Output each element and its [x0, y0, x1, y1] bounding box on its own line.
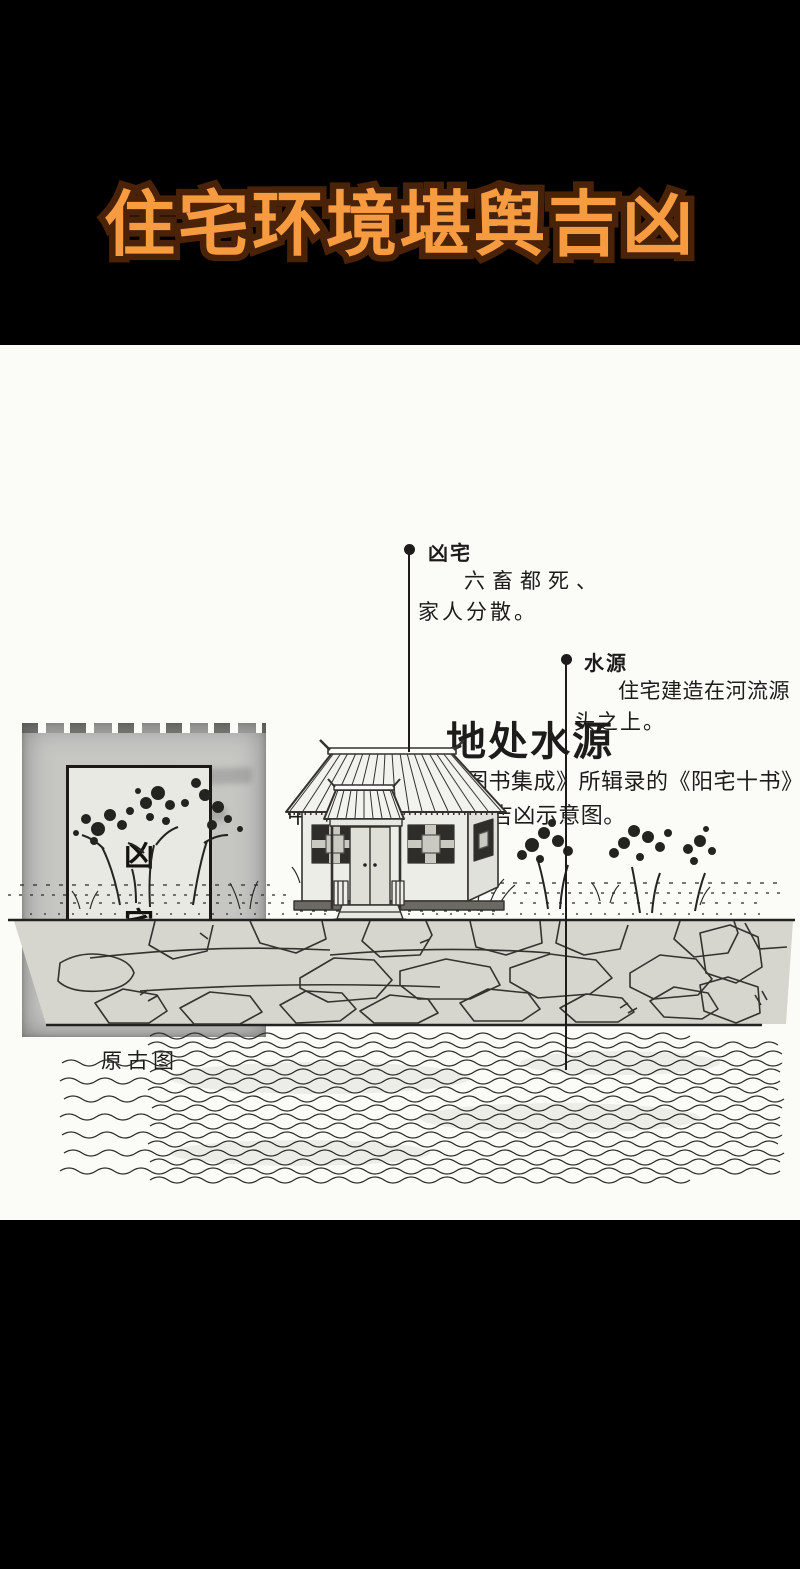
fengshui-illustration [0, 733, 800, 1193]
water-source-description: 住宅建造在河流源 头之上。 [574, 676, 790, 738]
left-trees [73, 778, 243, 907]
right-trees [517, 819, 716, 913]
water-source-label: 水源 [584, 647, 628, 676]
torn-edge [22, 723, 266, 733]
figure-panel: 凶 宅 原古图 地处水源 此图为《古今图书集成》所辑录的《阳宅十书》 中关于“地… [0, 345, 800, 1220]
house-illustration [286, 740, 506, 926]
rock-embankment [8, 920, 795, 1025]
water-waves [60, 1033, 784, 1183]
bad-house-leader-line [408, 552, 410, 752]
bad-house-description: 六畜都死、 家人分散。 [418, 566, 604, 628]
water-source-leader-line [565, 662, 567, 1070]
callout-bullet-dot [404, 544, 415, 555]
page: 住宅环境堪舆吉凶 凶 宅 原古图 地处水源 此图为《古今图书集成》所辑录的《阳宅… [0, 0, 800, 1569]
callout-bullet-dot [561, 654, 572, 665]
banner-title: 住宅环境堪舆吉凶 [0, 184, 800, 266]
bad-house-label: 凶宅 [428, 537, 472, 566]
